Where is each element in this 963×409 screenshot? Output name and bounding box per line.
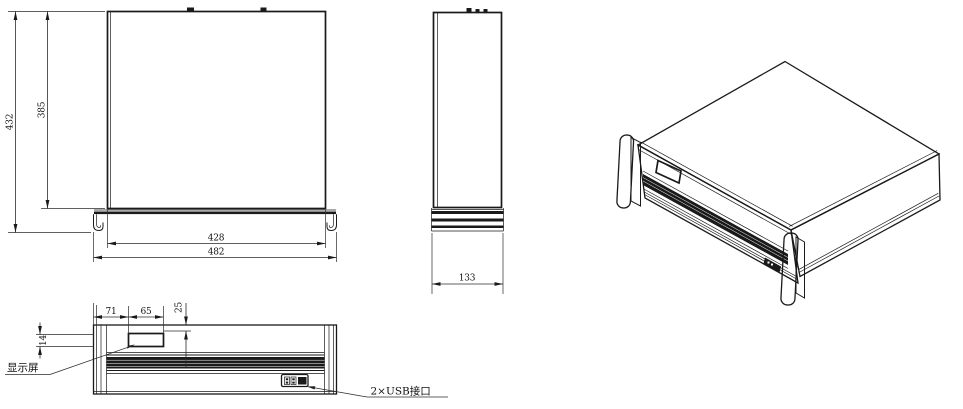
rear-tab: [467, 8, 472, 13]
rear-tab: [261, 8, 267, 13]
usb-label: 2×USB接口: [371, 385, 431, 398]
dim-overall-depth: 432: [6, 114, 16, 131]
dim-display-height: 14: [39, 335, 49, 347]
display-label: 显示屏: [7, 362, 39, 374]
dim-body-depth: 385: [38, 101, 48, 118]
dim-body-width: 428: [208, 234, 225, 244]
dim-display-offset-left: 71: [105, 307, 116, 317]
paper-background: [0, 0, 963, 409]
drawing-svg: 428 482 432 385: [0, 0, 963, 409]
engineering-drawing: 428 482 432 385: [0, 0, 963, 409]
front-panel-edge: [432, 208, 504, 231]
rear-tab: [476, 9, 480, 13]
dim-display-offset-top: 25: [175, 302, 185, 314]
dim-overall-width: 482: [208, 248, 225, 258]
dim-display-width: 65: [140, 307, 152, 317]
rear-tab: [484, 9, 488, 13]
dim-depth: 133: [459, 274, 476, 284]
rear-tab: [187, 8, 194, 13]
